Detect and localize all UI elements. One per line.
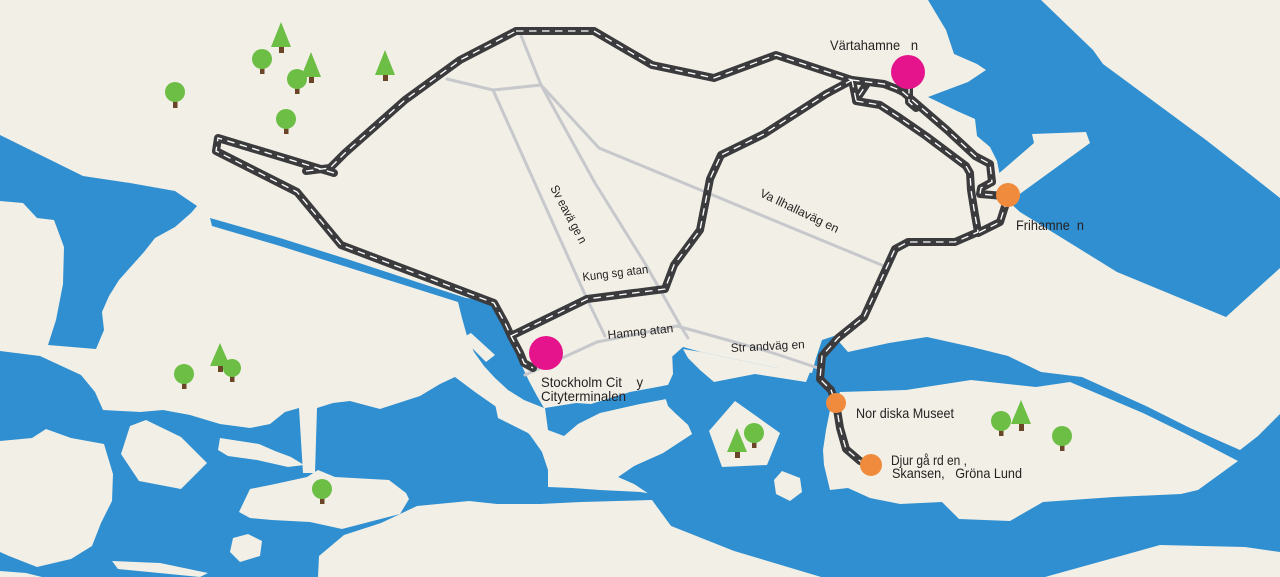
svg-text:Cityterminalen: Cityterminalen — [541, 388, 626, 404]
svg-text:Värtahamne n: Värtahamne n — [830, 37, 918, 53]
svg-text:Frihamne n: Frihamne n — [1016, 217, 1084, 233]
svg-text:Nor diska Museet: Nor diska Museet — [856, 405, 954, 421]
svg-text:Skansen, Gröna Lund: Skansen, Gröna Lund — [892, 465, 1022, 481]
